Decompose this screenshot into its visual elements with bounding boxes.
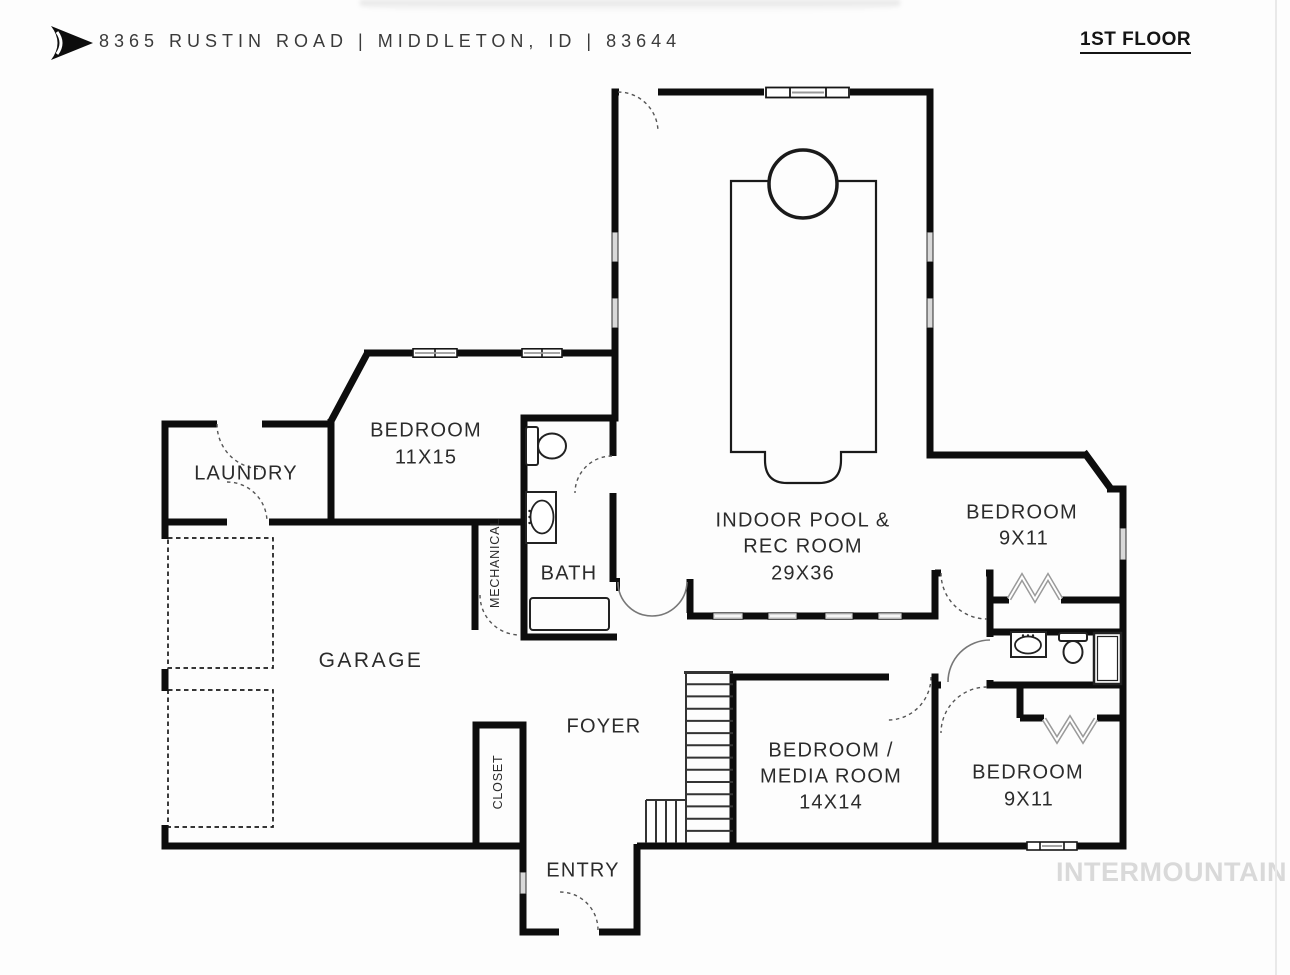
room-label-bedroom-upper: BEDROOM <box>966 502 1078 525</box>
room-dims-pool: 29X36 <box>771 563 835 586</box>
shower-icon <box>1094 633 1121 684</box>
bath-toilet-icon <box>526 427 566 465</box>
room-dims-bedroom-upper: 9X11 <box>999 528 1049 551</box>
stairs-icon <box>646 672 733 843</box>
pool-door-arc <box>618 92 658 132</box>
entry-door-arc <box>560 892 598 930</box>
room-label-pool-line1: INDOOR POOL & <box>716 510 891 533</box>
laundry-south-door-arc <box>227 482 267 522</box>
room-dims-bedroom-11x15: 11X15 <box>395 447 457 470</box>
room-label-media-line2: MEDIA ROOM <box>760 766 902 789</box>
room-label-bedroom-11x15: BEDROOM <box>370 420 482 443</box>
pool-double-door-left-arc <box>618 582 652 616</box>
hall-bath-door-arc <box>948 640 990 682</box>
room-label-bedroom-lower: BEDROOM <box>972 762 1084 785</box>
bath-sink-icon <box>526 492 556 543</box>
room-dims-media: 14X14 <box>799 792 863 815</box>
framed-windows <box>413 88 1077 851</box>
lower-bedroom-door-arc <box>941 687 987 733</box>
room-label-media-line1: BEDROOM / <box>768 740 893 763</box>
room-label-laundry: LAUNDRY <box>194 463 298 486</box>
hall-bath-sink-icon <box>1011 632 1046 657</box>
room-label-pool-line2: REC ROOM <box>743 536 863 559</box>
intermountain-watermark: INTERMOUNTAIN <box>1056 857 1287 888</box>
floor-plan <box>0 0 1290 975</box>
spa-icon <box>769 150 837 218</box>
bathtub-icon <box>530 598 609 630</box>
room-label-foyer: FOYER <box>567 716 642 739</box>
room-dims-bedroom-lower: 9X11 <box>1004 789 1054 812</box>
room-label-garage: GARAGE <box>319 649 424 673</box>
room-label-entry: ENTRY <box>546 860 619 883</box>
pool-icon <box>731 150 876 483</box>
room-label-closet: CLOSET <box>491 755 505 810</box>
bath-door-arc <box>575 456 612 493</box>
room-label-bath: BATH <box>541 563 598 586</box>
room-label-mechanical: MECHANICAL <box>488 518 502 608</box>
hall-bath-toilet-icon <box>1059 633 1087 663</box>
garage-door-outlines <box>168 538 273 827</box>
media-room-door-arc <box>888 677 931 720</box>
pool-double-door-right-arc <box>652 582 687 616</box>
page-edge-line <box>1275 0 1277 975</box>
floor-plan-page: 8365 RUSTIN ROAD | MIDDLETON, ID | 83644… <box>0 0 1290 975</box>
upper-bedroom-door-arc <box>941 573 987 619</box>
